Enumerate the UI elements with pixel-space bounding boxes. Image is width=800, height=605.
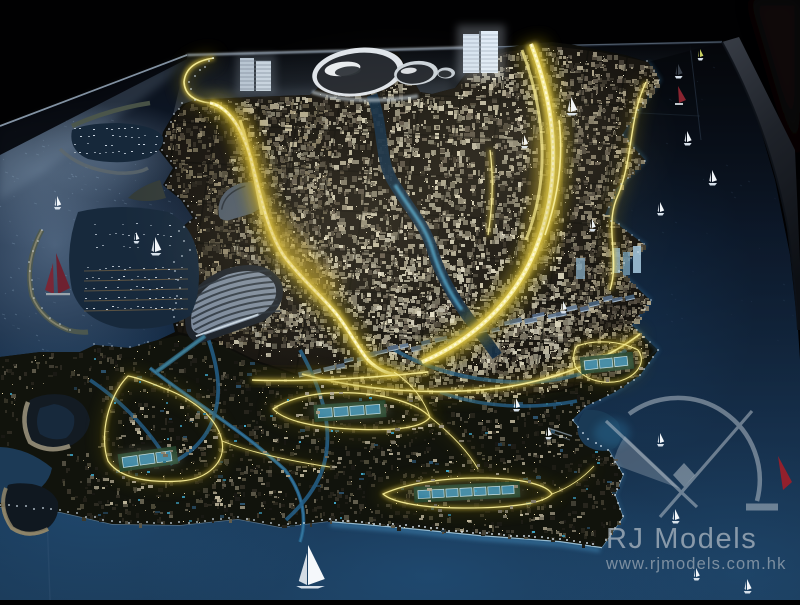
svg-text:www.rjmodels.com.hk: www.rjmodels.com.hk (605, 555, 786, 573)
svg-text:RJ Models: RJ Models (606, 523, 757, 555)
